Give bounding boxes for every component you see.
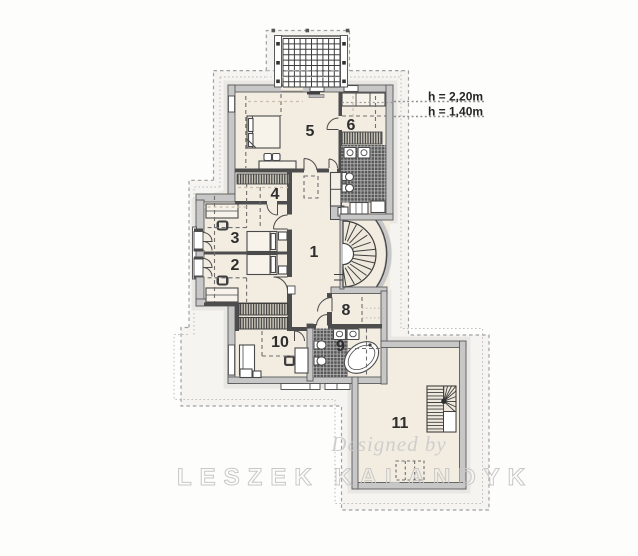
svg-text:h = 2,20m: h = 2,20m — [428, 90, 483, 104]
svg-text:11: 11 — [392, 415, 409, 432]
svg-text:LESZEK KALANDYK: LESZEK KALANDYK — [177, 464, 533, 491]
svg-text:5: 5 — [306, 123, 315, 140]
svg-text:6: 6 — [347, 117, 356, 134]
svg-text:h = 1,40m: h = 1,40m — [428, 105, 483, 119]
svg-text:9: 9 — [336, 338, 345, 355]
svg-text:8: 8 — [342, 302, 351, 319]
svg-text:3: 3 — [231, 230, 240, 247]
svg-text:Designed by: Designed by — [330, 432, 446, 456]
svg-text:10: 10 — [271, 334, 289, 351]
svg-text:4: 4 — [271, 186, 280, 203]
svg-text:2: 2 — [231, 257, 240, 274]
svg-text:1: 1 — [310, 244, 319, 261]
